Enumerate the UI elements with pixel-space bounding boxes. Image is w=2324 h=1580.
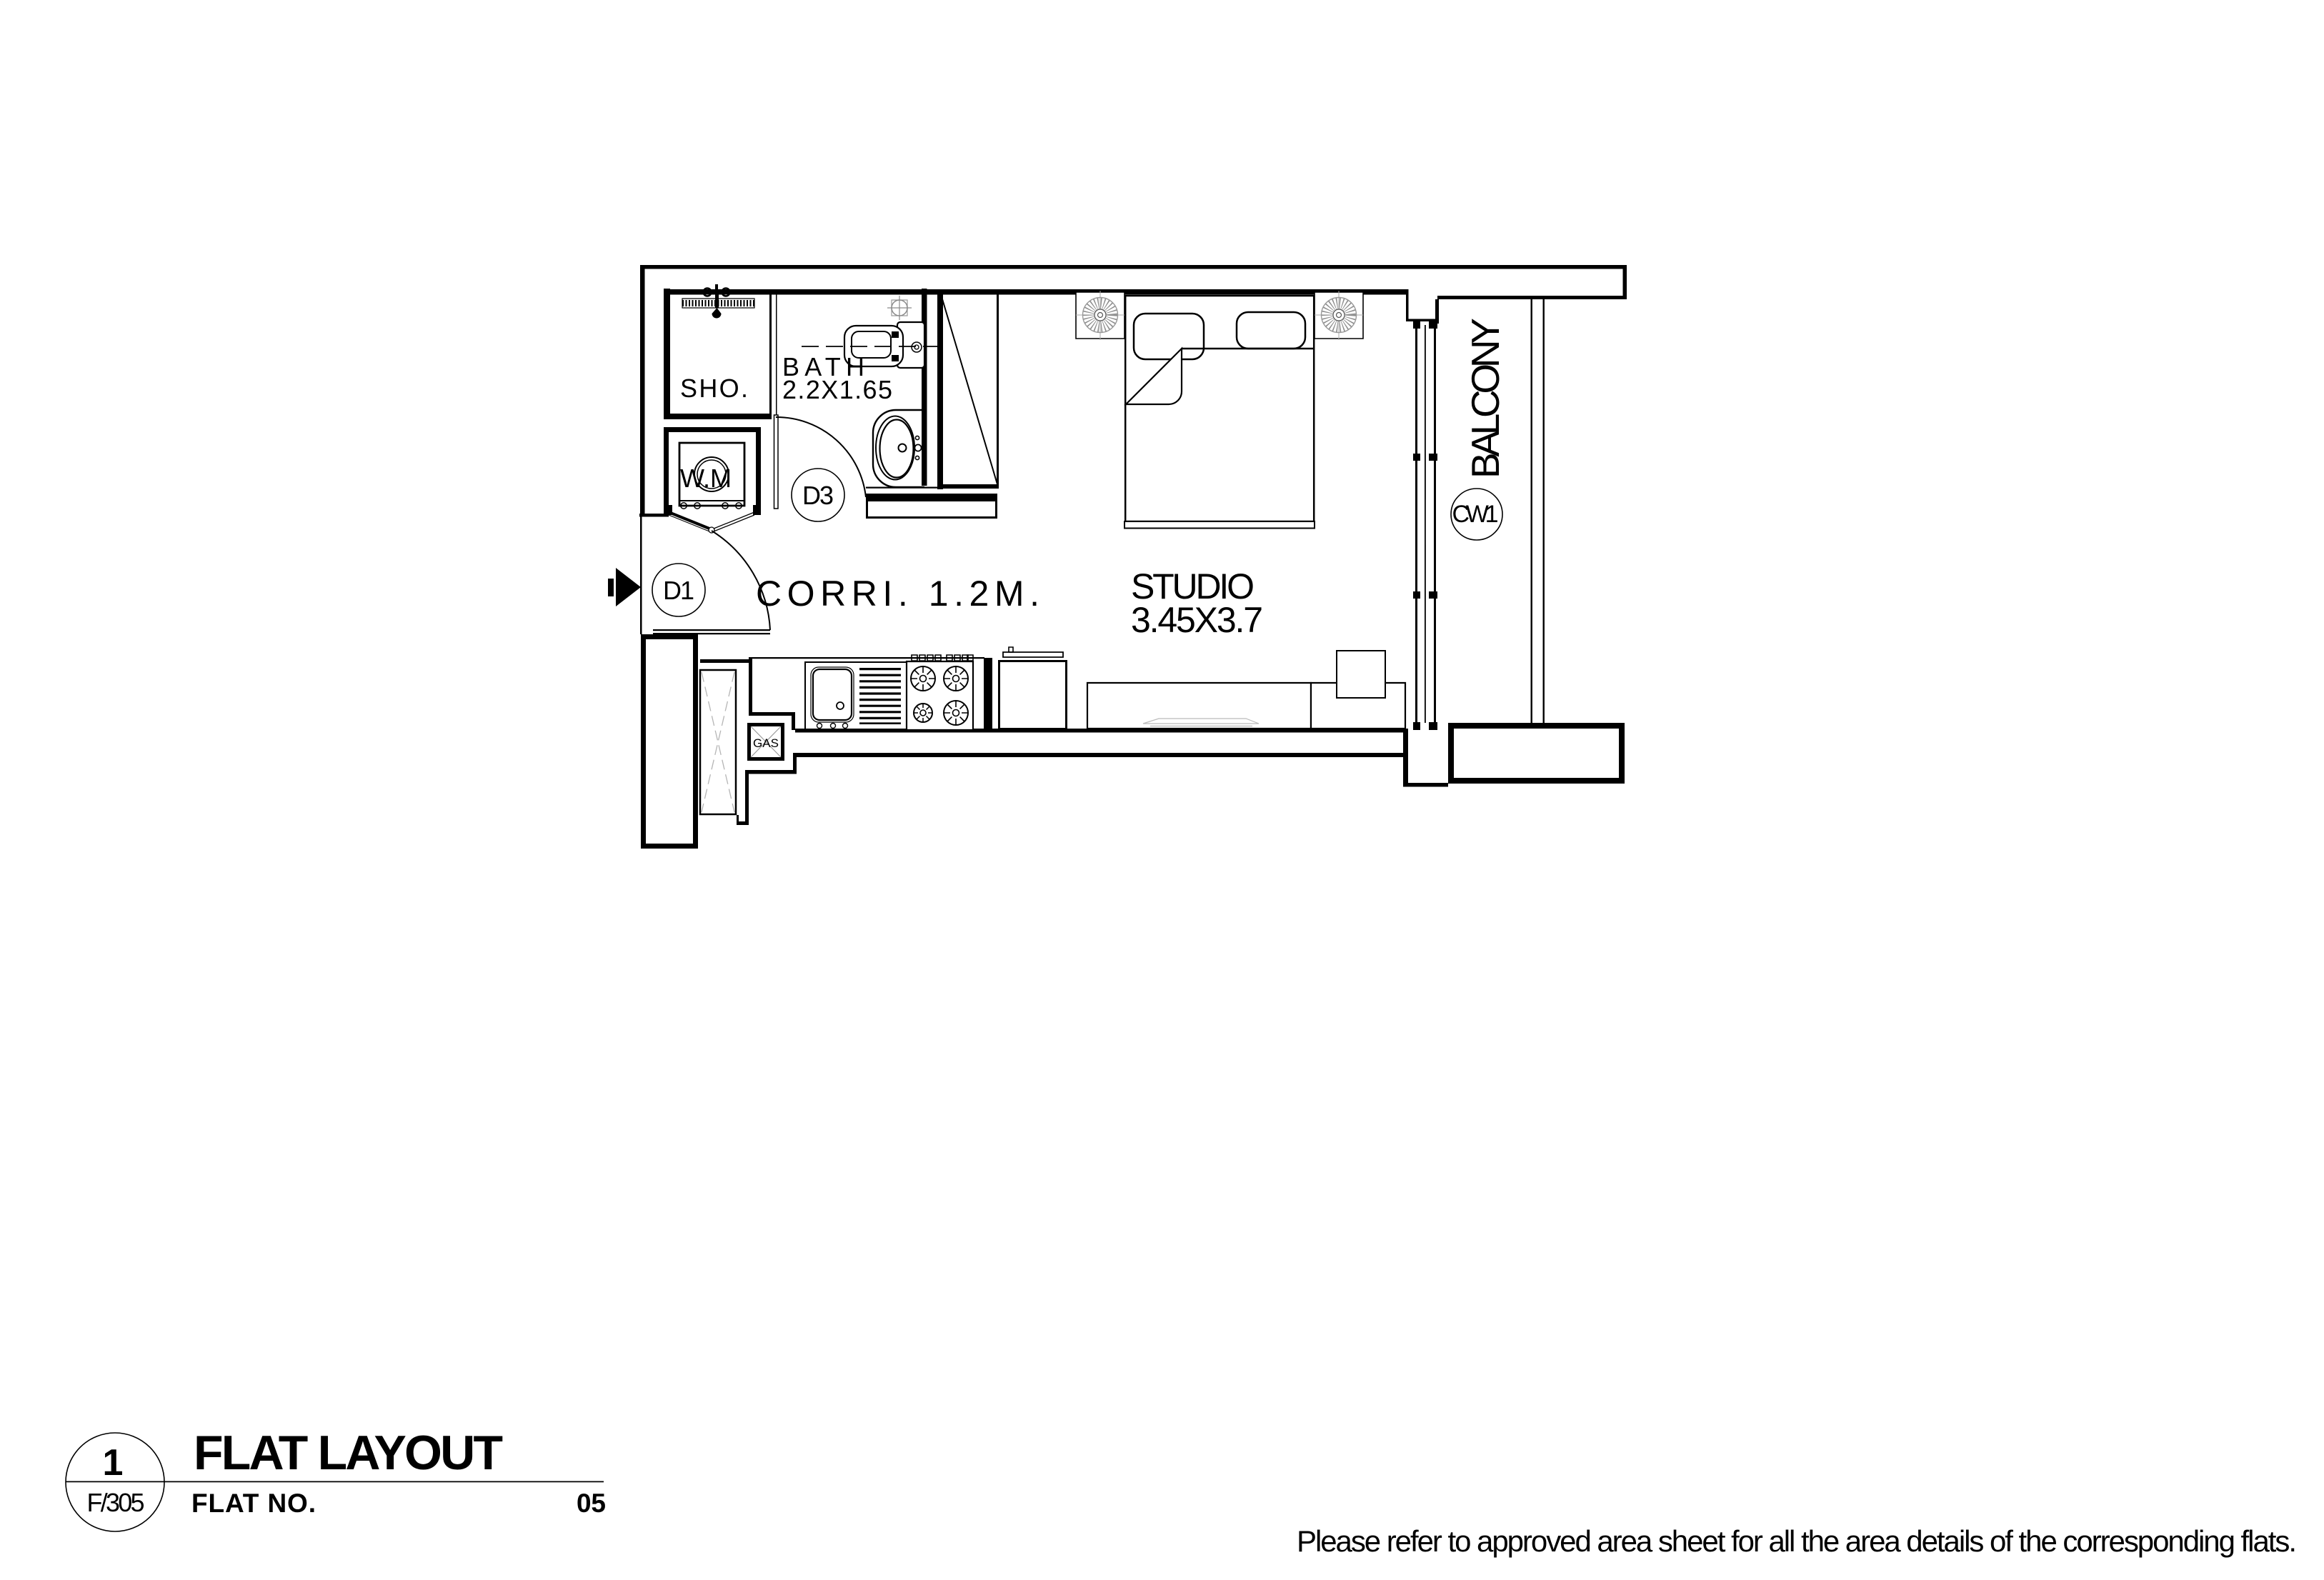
svg-text:F/305: F/305 bbox=[86, 1488, 144, 1517]
svg-text:D1: D1 bbox=[663, 576, 694, 605]
svg-text:3.45X3.7: 3.45X3.7 bbox=[1131, 600, 1263, 640]
svg-text:D3: D3 bbox=[802, 481, 834, 510]
svg-text:2.2X1.65: 2.2X1.65 bbox=[782, 375, 892, 404]
svg-text:CW1: CW1 bbox=[1452, 501, 1499, 528]
svg-text:FLAT LAYOUT: FLAT LAYOUT bbox=[194, 1426, 503, 1480]
svg-text:FLAT NO.: FLAT NO. bbox=[191, 1489, 316, 1518]
svg-text:W.M: W.M bbox=[680, 464, 732, 493]
svg-text:CORRI. 1.2M.: CORRI. 1.2M. bbox=[756, 574, 1039, 614]
svg-text:1: 1 bbox=[103, 1442, 124, 1484]
svg-text:Please refer to approved area: Please refer to approved area sheet for … bbox=[1297, 1524, 2297, 1558]
svg-text:BALCONY: BALCONY bbox=[1463, 318, 1507, 479]
svg-text:SHO.: SHO. bbox=[680, 374, 748, 403]
svg-text:GAS: GAS bbox=[753, 736, 779, 750]
svg-text:05: 05 bbox=[577, 1489, 606, 1518]
